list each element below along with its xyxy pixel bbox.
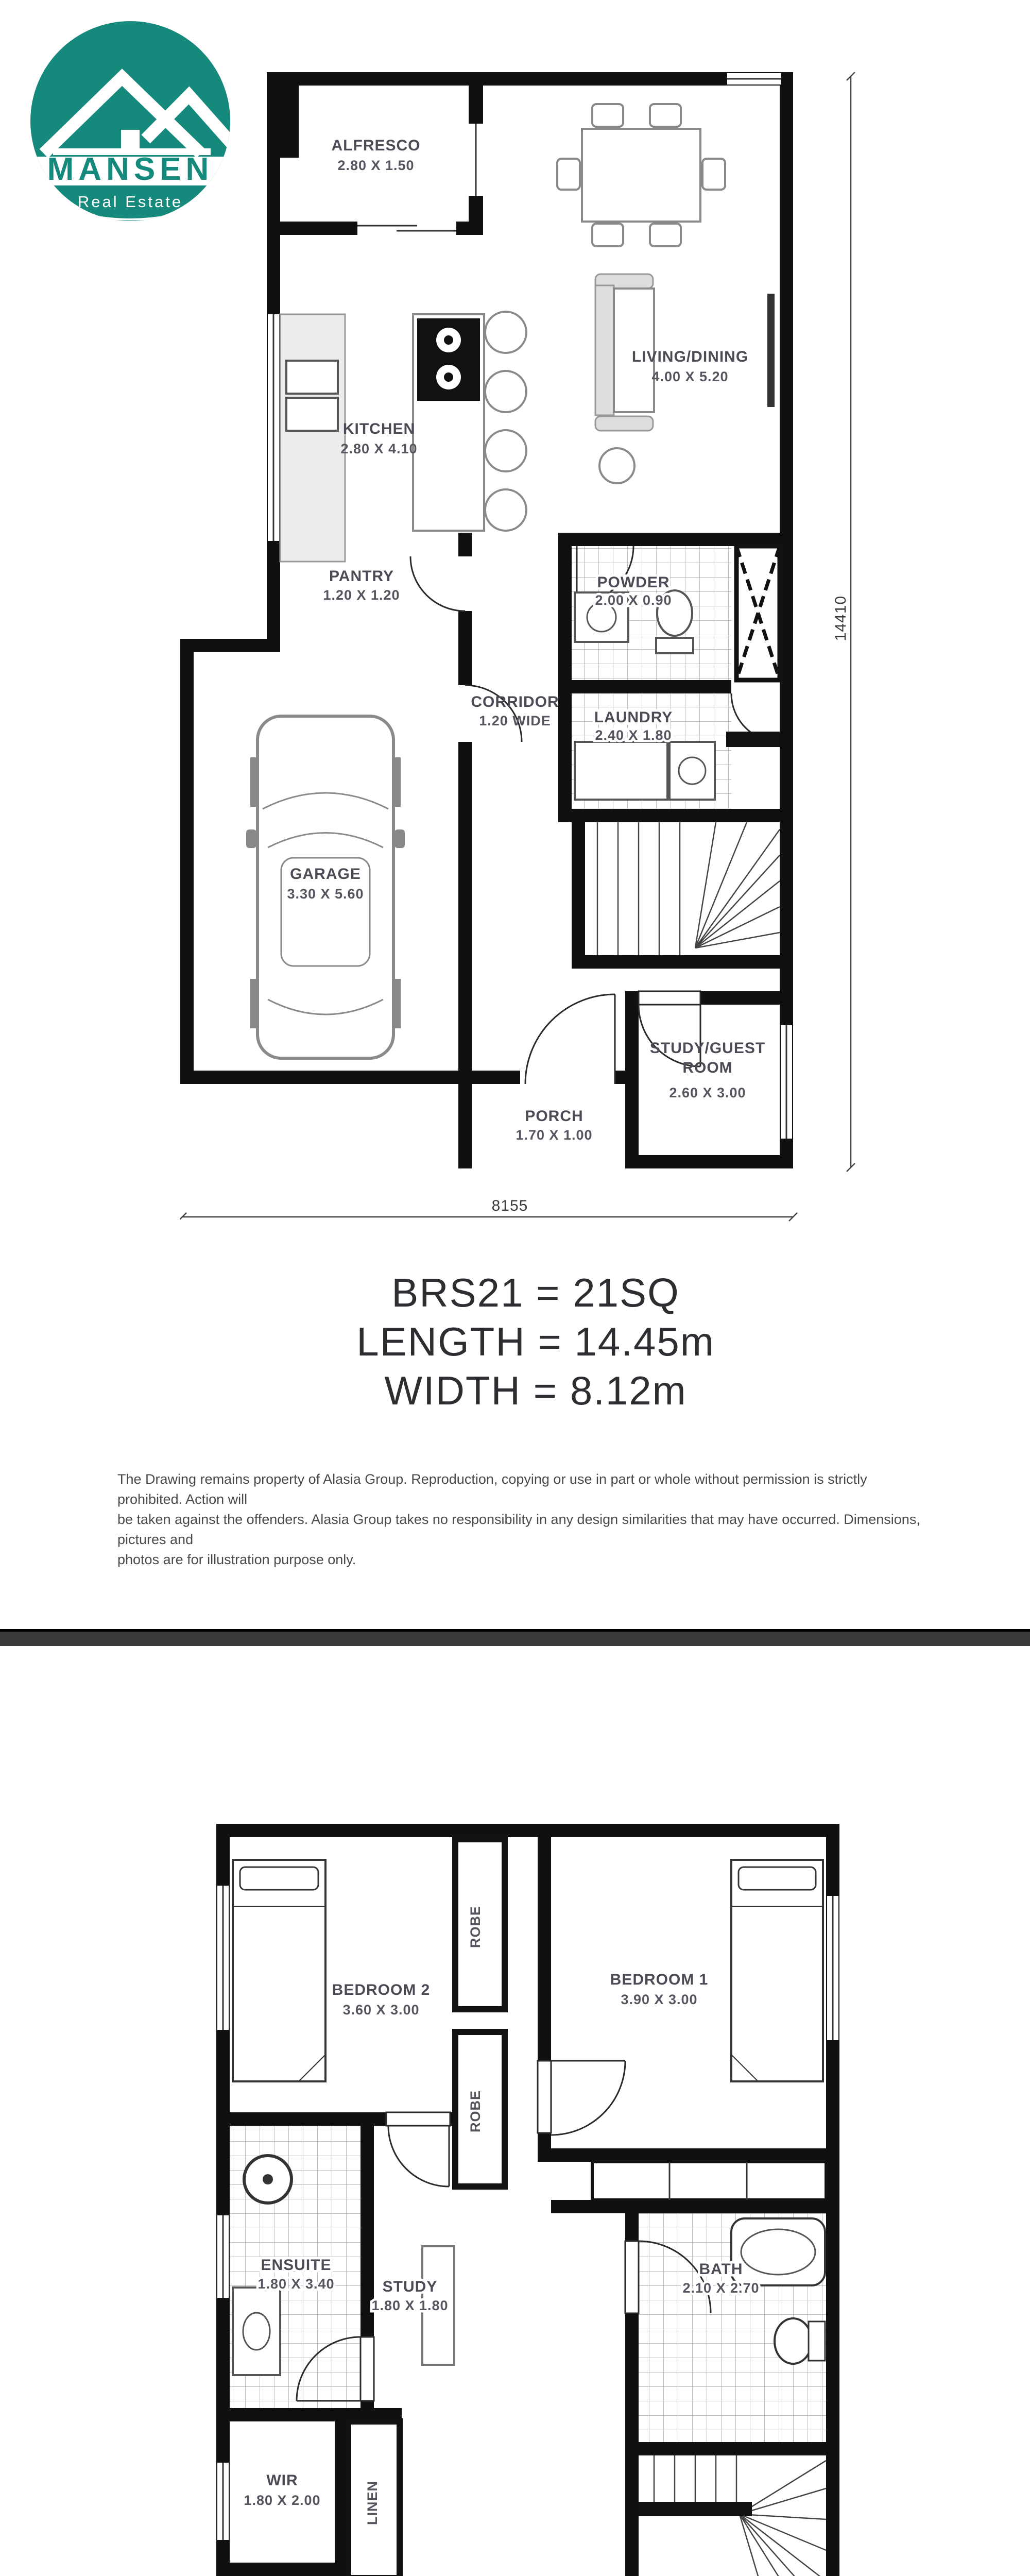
svg-text:1.80 X 2.00: 1.80 X 2.00 bbox=[244, 2493, 320, 2508]
svg-text:2.80 X 1.50: 2.80 X 1.50 bbox=[337, 158, 414, 173]
floorplan-sheet: MANSEN Real Estate bbox=[0, 0, 1030, 2576]
laundry-fixtures bbox=[575, 742, 715, 800]
svg-text:2.40 X 1.80: 2.40 X 1.80 bbox=[595, 727, 672, 743]
svg-text:2.60 X 3.00: 2.60 X 3.00 bbox=[669, 1085, 746, 1100]
svg-text:2.00 X 0.90: 2.00 X 0.90 bbox=[595, 592, 672, 608]
room-label: STUDY bbox=[383, 2278, 438, 2295]
sofa-icon bbox=[595, 274, 654, 483]
page-separator bbox=[0, 1629, 1030, 1646]
room-label: PANTRY bbox=[329, 568, 394, 585]
svg-text:3.30 X 5.60: 3.30 X 5.60 bbox=[287, 886, 364, 902]
room-label: CORRIDOR bbox=[471, 693, 559, 710]
room-label: KITCHEN bbox=[343, 420, 415, 437]
sink-icon bbox=[286, 361, 338, 394]
room-label: BEDROOM 1 bbox=[610, 1971, 709, 1988]
bed1-robe bbox=[592, 2162, 826, 2200]
room-label: ALFRESCO bbox=[332, 137, 421, 154]
plan-width: WIDTH = 8.12m bbox=[288, 1366, 783, 1415]
room-label: STUDY/GUEST bbox=[650, 1040, 765, 1057]
room-label: LAUNDRY bbox=[594, 709, 673, 726]
logo-tagline-text: Real Estate bbox=[78, 193, 183, 211]
room-label: ENSUITE bbox=[261, 2257, 331, 2274]
plan-spec-block: BRS21 = 21SQ LENGTH = 14.45m WIDTH = 8.1… bbox=[288, 1268, 783, 1415]
room-label: LIVING/DINING bbox=[632, 348, 748, 365]
room-label: BEDROOM 2 bbox=[332, 1981, 431, 1998]
tv-icon bbox=[767, 294, 775, 407]
room-label: ROBE bbox=[468, 2090, 483, 2132]
plan-length: LENGTH = 14.45m bbox=[288, 1317, 783, 1366]
room-label: POWDER bbox=[597, 574, 670, 591]
svg-text:2.80 X 4.10: 2.80 X 4.10 bbox=[340, 441, 417, 456]
first-floor-plan: BEDROOM 2 3.60 X 3.00 BEDROOM 1 3.90 X 3… bbox=[216, 1824, 855, 2576]
room-label: ROBE bbox=[468, 1906, 483, 1948]
ff-stairs bbox=[639, 2455, 826, 2576]
stair-rail-icon bbox=[726, 732, 780, 747]
side-table-icon bbox=[599, 448, 634, 483]
svg-text:ROOM: ROOM bbox=[682, 1059, 732, 1076]
svg-text:2.10 X 2.70: 2.10 X 2.70 bbox=[682, 2280, 759, 2296]
room-label: PORCH bbox=[525, 1108, 583, 1125]
stool-icon bbox=[485, 312, 526, 531]
toilet-icon bbox=[775, 2318, 812, 2364]
disclaimer-text: The Drawing remains property of Alasia G… bbox=[117, 1469, 921, 1570]
room-label: GARAGE bbox=[290, 866, 361, 883]
dining-table-icon bbox=[557, 104, 725, 246]
svg-text:1.70 X 1.00: 1.70 X 1.00 bbox=[516, 1127, 592, 1143]
bench-icon bbox=[575, 742, 667, 800]
trough-icon bbox=[669, 742, 715, 800]
svg-text:1.80 X 1.80: 1.80 X 1.80 bbox=[371, 2298, 448, 2313]
shower-icon bbox=[736, 546, 780, 680]
width-dimension: 8155 bbox=[492, 1197, 528, 1214]
svg-text:1.80 X 3.40: 1.80 X 3.40 bbox=[257, 2276, 334, 2292]
svg-text:1.20 WIDE: 1.20 WIDE bbox=[479, 713, 551, 728]
stair-rail-icon bbox=[639, 2502, 752, 2516]
room-label: WIR bbox=[266, 2472, 298, 2489]
room-label: BATH bbox=[699, 2261, 743, 2278]
vanity-icon bbox=[233, 2287, 280, 2375]
plan-code: BRS21 = 21SQ bbox=[288, 1268, 783, 1317]
svg-text:3.60 X 3.00: 3.60 X 3.00 bbox=[342, 2002, 419, 2018]
height-dimension: 14410 bbox=[832, 596, 849, 641]
room-label: LINEN bbox=[365, 2481, 380, 2525]
svg-text:3.90 X 3.00: 3.90 X 3.00 bbox=[621, 1992, 697, 2007]
svg-text:4.00 X 5.20: 4.00 X 5.20 bbox=[651, 369, 728, 384]
ground-floor-plan: ALFRESCO 2.80 X 1.50 KITCHEN 2.80 X 4.10… bbox=[180, 72, 875, 1252]
svg-text:1.20 X 1.20: 1.20 X 1.20 bbox=[323, 587, 400, 603]
